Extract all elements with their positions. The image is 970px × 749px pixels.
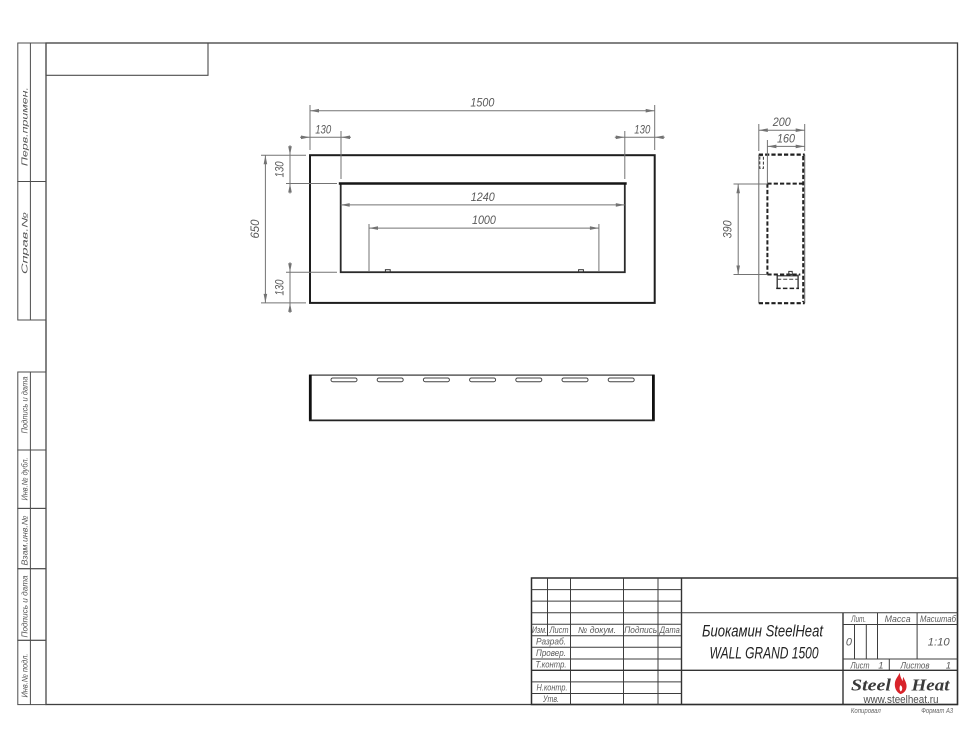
svg-text:1: 1 bbox=[878, 660, 883, 671]
svg-text:1500: 1500 bbox=[470, 96, 494, 110]
svg-text:Масштаб: Масштаб bbox=[920, 614, 957, 624]
svg-text:130: 130 bbox=[273, 279, 287, 295]
svg-text:Подпись и дата: Подпись и дата bbox=[20, 575, 29, 637]
svg-text:1240: 1240 bbox=[471, 190, 495, 204]
svg-text:WALL GRAND 1500: WALL GRAND 1500 bbox=[710, 645, 819, 663]
svg-text:Лит.: Лит. bbox=[850, 614, 866, 624]
svg-text:Steel: Steel bbox=[851, 676, 891, 695]
svg-text:160: 160 bbox=[777, 131, 795, 145]
svg-text:Н.контр.: Н.контр. bbox=[537, 682, 568, 692]
svg-text:Подпись: Подпись bbox=[624, 625, 657, 635]
svg-text:www.steelheat.ru: www.steelheat.ru bbox=[863, 694, 939, 706]
svg-text:Т.контр.: Т.контр. bbox=[536, 659, 567, 669]
svg-text:Heat: Heat bbox=[910, 676, 951, 695]
svg-text:130: 130 bbox=[634, 122, 650, 136]
svg-text:Перв.примен.: Перв.примен. bbox=[20, 87, 29, 166]
svg-text:Провер.: Провер. bbox=[536, 648, 566, 658]
svg-text:Подпись и дата: Подпись и дата bbox=[20, 376, 29, 433]
svg-text:Формат А3: Формат А3 bbox=[921, 708, 953, 715]
svg-text:1: 1 bbox=[946, 660, 951, 671]
svg-text:Утв.: Утв. bbox=[542, 694, 559, 704]
svg-text:390: 390 bbox=[721, 220, 735, 238]
svg-text:130: 130 bbox=[273, 161, 287, 177]
svg-text:Изм.: Изм. bbox=[532, 625, 547, 635]
svg-text:Разраб.: Разраб. bbox=[536, 636, 566, 646]
svg-text:0: 0 bbox=[846, 637, 853, 649]
svg-text:Инв.№ дубл.: Инв.№ дубл. bbox=[20, 458, 29, 501]
svg-text:Копировал: Копировал bbox=[851, 708, 881, 715]
svg-text:1:10: 1:10 bbox=[928, 636, 951, 648]
svg-text:200: 200 bbox=[772, 115, 791, 129]
svg-text:1000: 1000 bbox=[472, 213, 496, 227]
svg-text:Биокамин SteelHeat: Биокамин SteelHeat bbox=[702, 622, 824, 640]
svg-text:Дата: Дата bbox=[659, 625, 680, 635]
svg-text:№ докум.: № докум. bbox=[578, 625, 616, 635]
svg-text:130: 130 bbox=[315, 122, 331, 136]
svg-text:650: 650 bbox=[248, 219, 262, 238]
svg-text:Взам.инв.№: Взам.инв.№ bbox=[20, 515, 29, 565]
svg-text:Инв.№ подл.: Инв.№ подл. bbox=[20, 654, 29, 698]
svg-text:Листов: Листов bbox=[900, 660, 930, 670]
svg-text:Справ.№: Справ.№ bbox=[20, 212, 29, 274]
svg-text:Масса: Масса bbox=[885, 614, 911, 624]
svg-text:Лист: Лист bbox=[850, 660, 870, 670]
svg-text:Лист: Лист bbox=[549, 625, 569, 635]
